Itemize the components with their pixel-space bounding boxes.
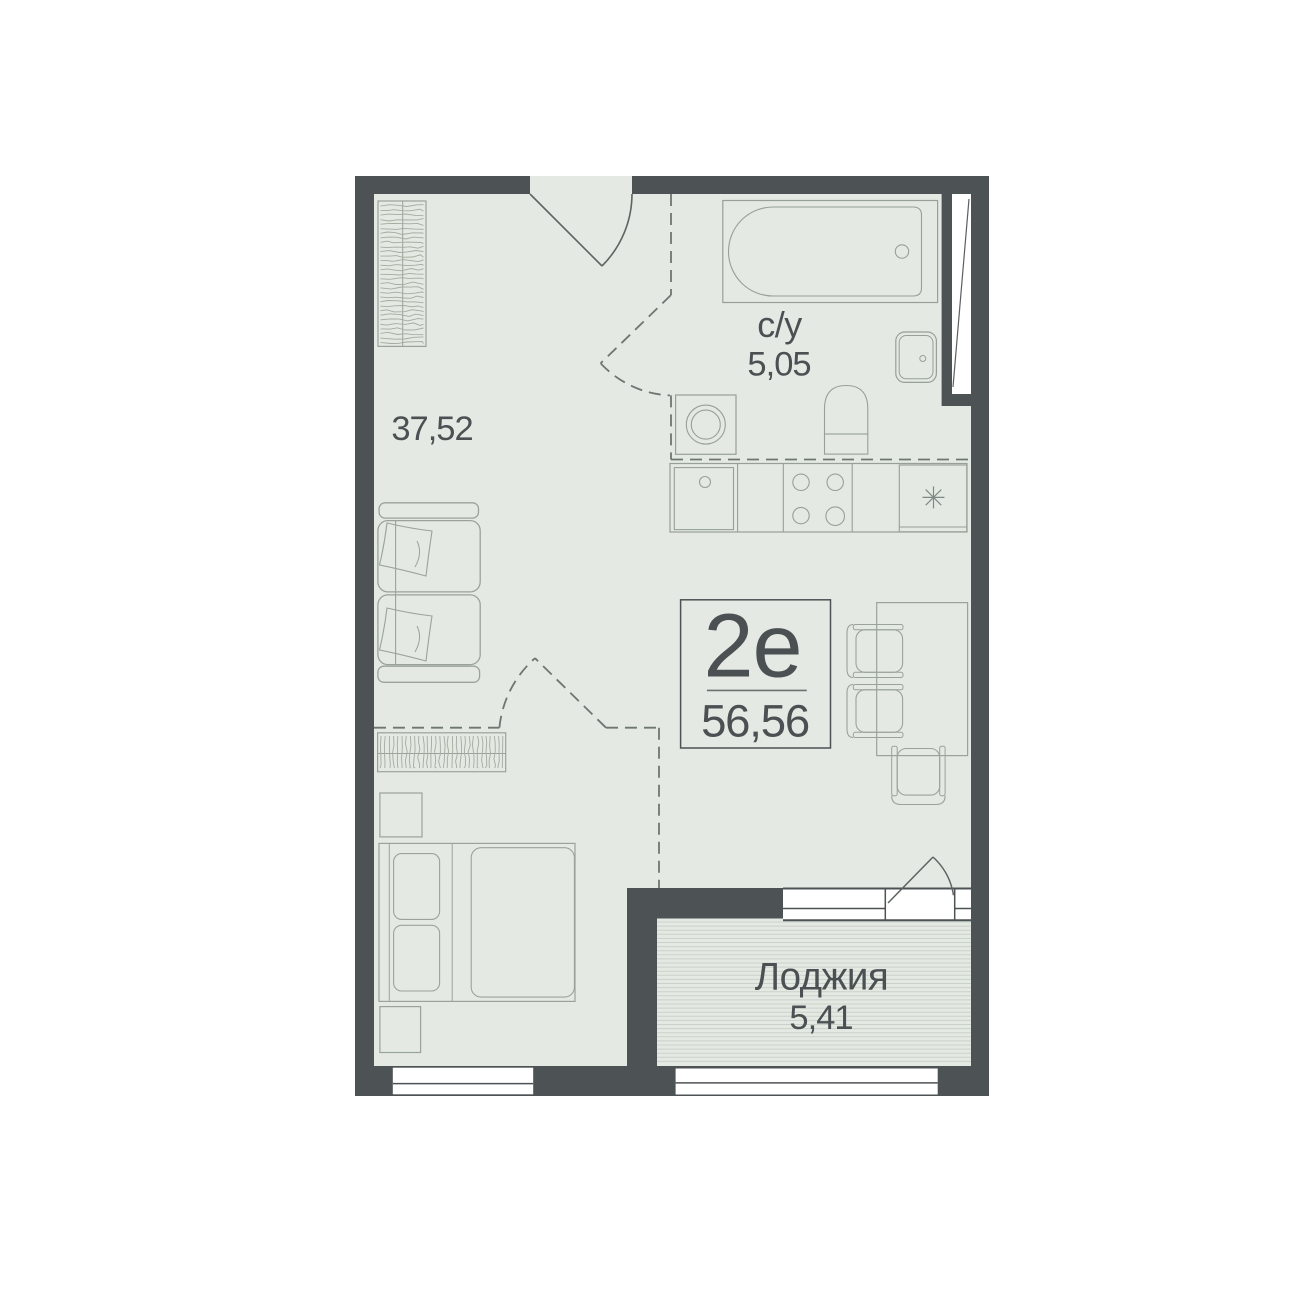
- svg-text:37,52: 37,52: [391, 410, 472, 448]
- svg-text:Лоджия: Лоджия: [755, 955, 888, 998]
- svg-text:с/у: с/у: [757, 304, 802, 345]
- svg-text:2е: 2е: [703, 597, 801, 697]
- svg-text:5,05: 5,05: [747, 345, 810, 383]
- svg-text:56,56: 56,56: [701, 696, 809, 747]
- svg-text:5,41: 5,41: [789, 999, 852, 1037]
